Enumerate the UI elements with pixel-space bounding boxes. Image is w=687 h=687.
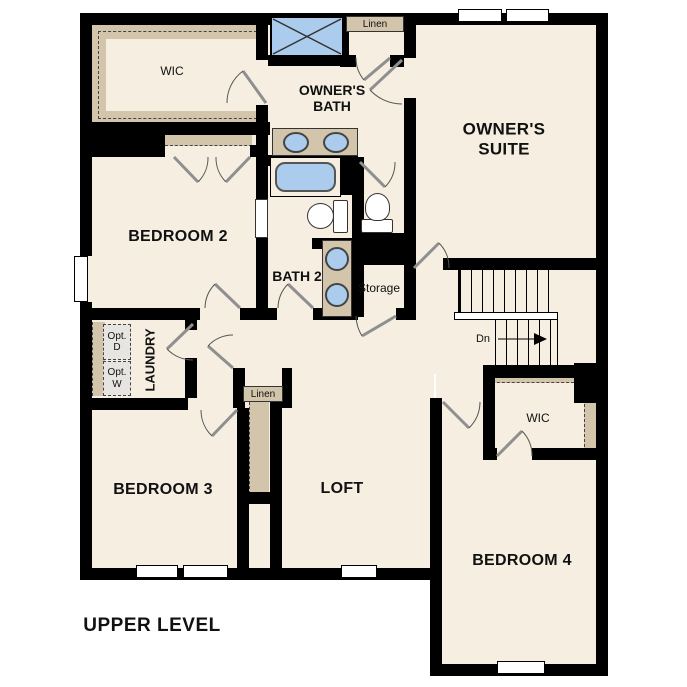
room-label-laundry: LAUNDRY [143, 328, 158, 391]
room-label-loft: LOFT [321, 480, 364, 498]
wall-segment [390, 55, 404, 67]
linen-closet-upper: Linen [346, 16, 404, 32]
room-label-owners-bath: OWNER'S BATH [299, 82, 365, 114]
window [458, 9, 502, 22]
optional-washer-box: Opt. W [103, 361, 131, 396]
room-label-bath2: BATH 2 [272, 268, 322, 284]
stairs-down-label: Dn [476, 333, 490, 345]
level-title: UPPER LEVEL [83, 615, 220, 637]
room-label-storage: Storage [358, 281, 400, 295]
window [74, 256, 88, 302]
stairs-upper-run [458, 270, 558, 312]
sink [283, 132, 309, 153]
closet-shelf-linen-lower [249, 402, 269, 494]
linen-closet-lower: Linen [243, 386, 283, 402]
toilet-tank [361, 219, 393, 233]
window [506, 9, 549, 22]
wall-segment [404, 13, 416, 58]
bathtub [275, 162, 336, 192]
wall-segment [80, 308, 200, 320]
wall-segment [80, 302, 92, 578]
linen-lower-label: Linen [251, 389, 275, 400]
room-label-bedroom3: BEDROOM 3 [113, 481, 213, 499]
sink [325, 283, 349, 307]
optional-washer-label: Opt. [108, 367, 127, 379]
room-label-owners-suite: OWNER'S SUITE [463, 119, 546, 158]
pocket-door [255, 199, 268, 238]
stair-rail [454, 312, 558, 320]
wall-segment [80, 122, 165, 157]
window [136, 565, 178, 578]
room-label-bedroom4-wic: WIC [526, 411, 549, 425]
room-label-owners-wic: WIC [160, 64, 183, 78]
wall-segment [443, 258, 608, 270]
wall-segment [80, 568, 440, 580]
wall-segment [596, 13, 608, 676]
wall-segment [80, 398, 188, 410]
toilet-tank [333, 200, 348, 233]
wall-segment [483, 448, 497, 460]
optional-dryer-label: D [113, 342, 120, 354]
wall-segment [574, 363, 608, 403]
room-label-bedroom2: BEDROOM 2 [128, 228, 228, 246]
wall-segment [185, 318, 197, 330]
wall-segment [256, 13, 268, 60]
toilet-bowl [307, 203, 334, 229]
wall-segment [237, 408, 249, 568]
linen-upper-label: Linen [363, 19, 387, 30]
window [497, 661, 545, 674]
wall-segment [185, 358, 197, 398]
stairs-lower-run [495, 320, 558, 365]
optional-dryer-label: Opt. [108, 331, 127, 343]
wall-segment [532, 448, 608, 460]
wall-segment [352, 233, 404, 265]
wall-segment [483, 366, 495, 460]
window [341, 565, 377, 578]
wall-segment [404, 98, 416, 268]
floor-plan: Opt. D Opt. W Linen Linen WIC OWNER'S [0, 0, 687, 687]
optional-dryer-box: Opt. D [103, 324, 131, 360]
toilet-bowl [365, 193, 390, 221]
wall-segment [430, 398, 442, 676]
optional-washer-label: W [112, 379, 121, 391]
room-label-bedroom4: BEDROOM 4 [472, 552, 572, 570]
window [183, 565, 228, 578]
wall-segment [270, 400, 282, 578]
sink [325, 247, 349, 271]
wall-segment [256, 308, 277, 320]
shower [270, 16, 344, 57]
wall-segment [237, 492, 282, 504]
wall-segment [396, 308, 416, 320]
wall-segment [282, 368, 292, 408]
sink [323, 132, 349, 153]
